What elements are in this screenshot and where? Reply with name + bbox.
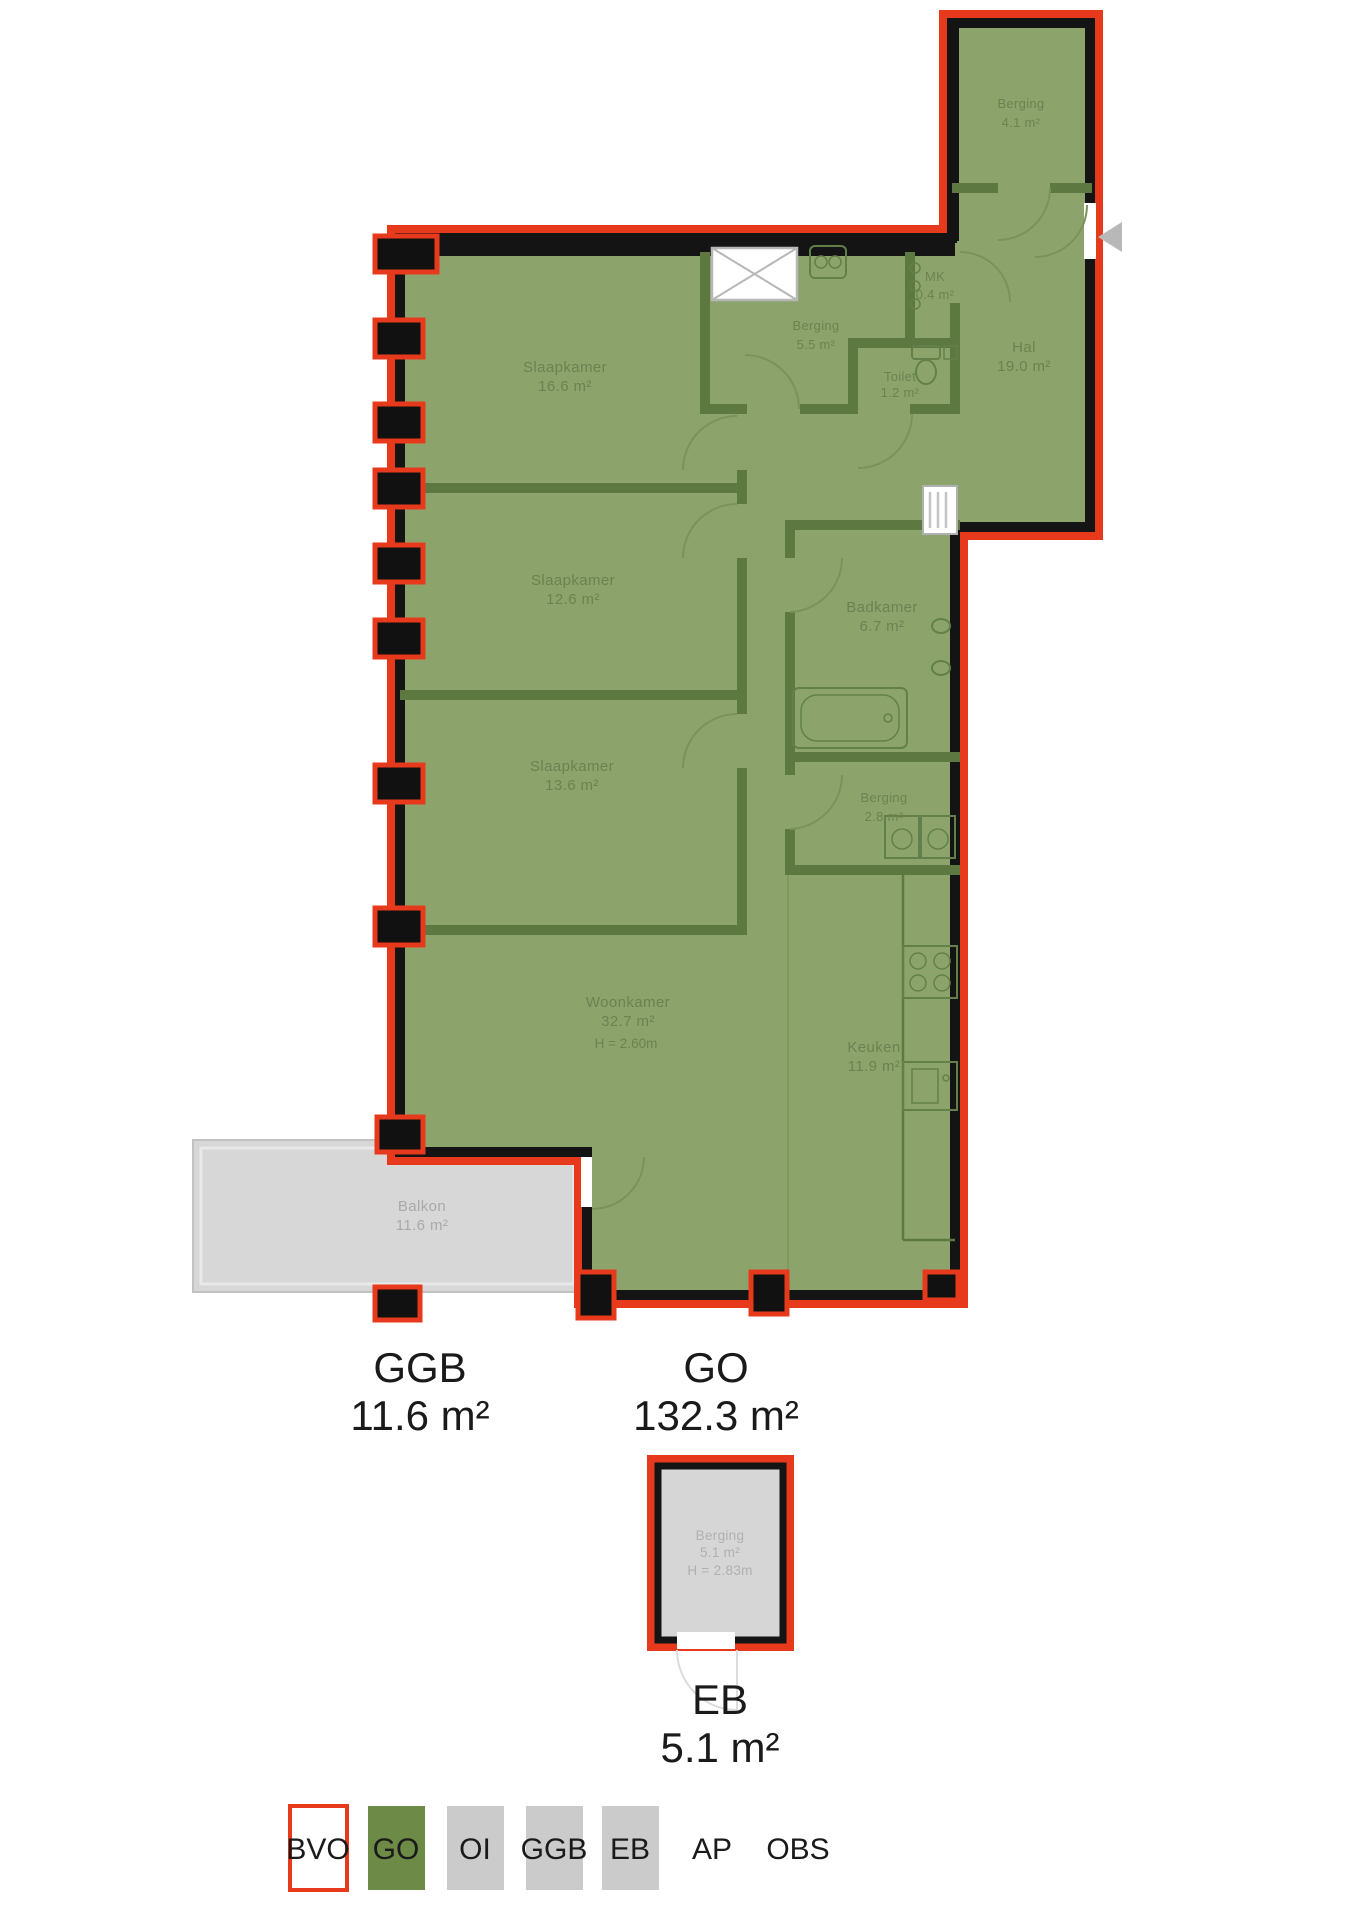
shaft-symbol bbox=[712, 248, 797, 300]
room-area: 32.7 m² bbox=[601, 1013, 655, 1030]
room-area: 5.5 m² bbox=[797, 337, 836, 352]
legend: BVO GO OI GGB EB AP OBS bbox=[286, 1806, 829, 1890]
legend-item-eb: EB bbox=[602, 1806, 659, 1890]
room-name: Hal bbox=[1012, 339, 1036, 356]
legend-item-bvo: BVO bbox=[286, 1806, 349, 1890]
room-area: 16.6 m² bbox=[538, 378, 592, 395]
legend-label-oi: OI bbox=[459, 1833, 491, 1866]
room-name: Balkon bbox=[398, 1198, 446, 1215]
legend-label-ap: AP bbox=[692, 1833, 732, 1866]
legend-label-go: GO bbox=[373, 1833, 420, 1866]
legend-label-ggb: GGB bbox=[521, 1833, 588, 1866]
legend-item-oi: OI bbox=[447, 1806, 504, 1890]
legend-item-ggb: GGB bbox=[521, 1806, 588, 1890]
go-label: GO bbox=[683, 1344, 748, 1391]
eb-room-height: H = 2.83m bbox=[687, 1563, 752, 1578]
room-name: Slaapkamer bbox=[530, 758, 614, 775]
legend-label-bvo: BVO bbox=[286, 1833, 349, 1866]
room-name: Berging bbox=[793, 318, 840, 333]
room-name: Slaapkamer bbox=[531, 572, 615, 589]
eb-value: 5.1 m² bbox=[660, 1724, 779, 1771]
eb-door-opening bbox=[677, 1632, 735, 1649]
eb-label: EB bbox=[692, 1676, 748, 1723]
room-name: Badkamer bbox=[846, 599, 918, 616]
legend-label-eb: EB bbox=[610, 1833, 650, 1866]
legend-item-go: GO bbox=[368, 1806, 425, 1890]
room-name: Berging bbox=[998, 96, 1045, 111]
room-area: 19.0 m² bbox=[997, 358, 1051, 375]
room-area: 11.6 m² bbox=[396, 1217, 449, 1234]
room-area: 1.2 m² bbox=[881, 385, 920, 400]
room-label-toilet: Toilet 1.2 m² bbox=[881, 369, 920, 400]
room-area: 12.6 m² bbox=[546, 591, 600, 608]
eb-room-area: 5.1 m² bbox=[700, 1545, 740, 1560]
room-name: MK bbox=[925, 269, 945, 284]
ggb-value: 11.6 m² bbox=[350, 1392, 489, 1439]
room-name: Toilet bbox=[884, 369, 916, 384]
floorplan-page: Berging 4.1 m² Hal 19.0 m² MK 0.4 m² Ber… bbox=[0, 0, 1358, 1920]
external-storage-box: Berging 5.1 m² H = 2.83m EB 5.1 m² bbox=[651, 1459, 790, 1771]
radiator-niche bbox=[923, 486, 957, 534]
legend-label-obs: OBS bbox=[766, 1833, 829, 1866]
area-summary: GGB 11.6 m² GO 132.3 m² bbox=[350, 1344, 799, 1439]
room-height: H = 2.60m bbox=[595, 1036, 658, 1051]
room-area: 11.9 m² bbox=[848, 1058, 901, 1075]
room-name: Berging bbox=[861, 790, 908, 805]
room-name: Keuken bbox=[847, 1039, 900, 1056]
legend-item-obs: OBS bbox=[766, 1833, 829, 1866]
room-area: 4.1 m² bbox=[1002, 115, 1041, 130]
room-name: Slaapkamer bbox=[523, 359, 607, 376]
ggb-label: GGB bbox=[373, 1344, 466, 1391]
legend-item-ap: AP bbox=[692, 1833, 732, 1866]
room-area: 2.8 m² bbox=[865, 809, 904, 824]
balcony-door-opening bbox=[581, 1157, 592, 1207]
room-area: 6.7 m² bbox=[860, 618, 905, 635]
floorplan-drawing: Berging 4.1 m² Hal 19.0 m² MK 0.4 m² Ber… bbox=[0, 0, 1358, 1920]
room-area: 13.6 m² bbox=[545, 777, 599, 794]
room-name: Woonkamer bbox=[586, 994, 670, 1011]
go-value: 132.3 m² bbox=[633, 1392, 799, 1439]
eb-room-name: Berging bbox=[696, 1528, 745, 1543]
room-area: 0.4 m² bbox=[916, 287, 955, 302]
